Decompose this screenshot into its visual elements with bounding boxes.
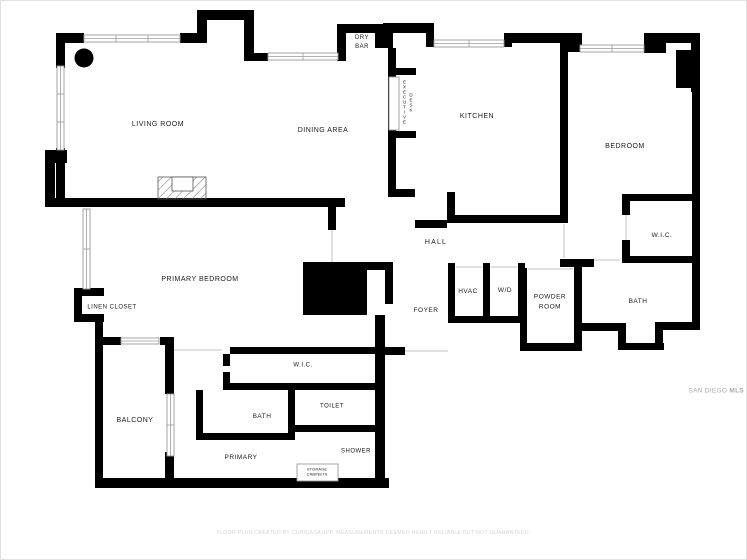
disclaimer-text: FLOOR PLAN CREATED BY CUBICASA APP. MEAS… [216, 530, 530, 536]
desk-fixture [389, 77, 399, 130]
room-label-balcony: BALCONY [117, 416, 154, 427]
window [167, 394, 174, 456]
executive-desk-word-1: EXECUTIVE [402, 80, 407, 125]
floor-plan-page: LIVING ROOM DINING AREA DRY BAR KITCHEN … [0, 0, 747, 560]
sliding-door [121, 338, 159, 344]
room-label-hall: HALL [425, 238, 447, 249]
window [84, 35, 180, 42]
room-label-living-room: LIVING ROOM [132, 120, 184, 131]
window [57, 66, 64, 150]
room-label-storage-cabinets: STORAGE CABINETS [307, 467, 328, 478]
executive-desk-word-2: DESK [408, 92, 413, 112]
room-label-powder-room: POWDER ROOM [534, 292, 566, 312]
room-label-bath-bedroom: BATH [629, 297, 648, 307]
door-openings [174, 215, 626, 351]
room-label-bedroom: BEDROOM [605, 142, 645, 153]
room-label-shower: SHOWER [341, 448, 371, 457]
room-label-kitchen: KITCHEN [460, 112, 494, 123]
room-label-dry-bar: DRY BAR [355, 34, 369, 52]
room-label-linen-closet: LINEN CLOSET [87, 304, 136, 313]
window [83, 209, 90, 289]
windows [57, 35, 644, 456]
mls-watermark-part2: MLS [729, 388, 744, 395]
executive-desk-label: EXECUTIVE DESK [402, 80, 413, 125]
room-label-dining-area: DINING AREA [298, 126, 349, 137]
room-label-hvac: HVAC [458, 287, 478, 297]
room-label-bath-primary: BATH [253, 412, 272, 422]
room-label-wic-bedroom: W.I.C. [652, 231, 673, 241]
window [580, 45, 644, 52]
fireplace-icon [158, 177, 206, 199]
window [434, 40, 504, 47]
column-icon [75, 49, 94, 68]
room-label-primary: PRIMARY [225, 453, 258, 463]
room-label-foyer: FOYER [414, 306, 439, 316]
window [268, 53, 338, 60]
room-label-toilet: TOILET [320, 403, 344, 412]
room-label-primary-bedroom: PRIMARY BEDROOM [161, 275, 238, 286]
room-label-wic-primary: W.I.C. [293, 362, 312, 371]
floor-plan-drawing [0, 0, 747, 560]
room-label-washer-dryer: W/D [498, 286, 512, 296]
mls-watermark: SAN DIEGO MLS [688, 388, 744, 395]
mls-watermark-part1: SAN DIEGO [688, 388, 727, 395]
